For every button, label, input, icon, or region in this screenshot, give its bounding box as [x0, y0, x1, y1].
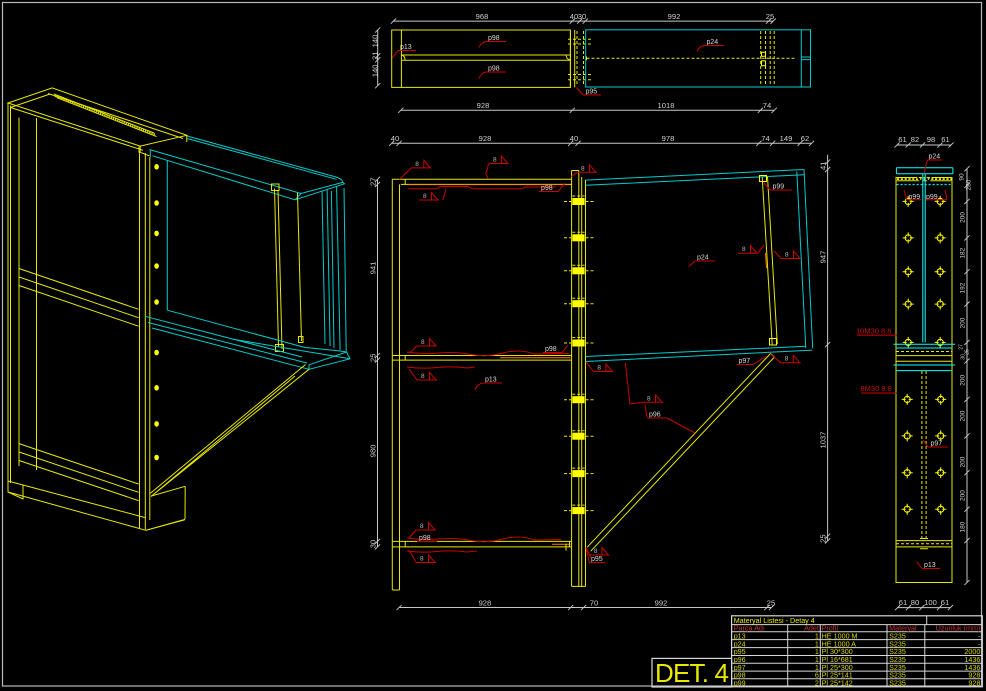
- svg-text:992: 992: [668, 12, 681, 21]
- svg-text:182: 182: [960, 247, 967, 258]
- svg-text:p95: p95: [591, 556, 603, 563]
- svg-text:8: 8: [742, 246, 746, 253]
- svg-text:p98: p98: [545, 346, 557, 353]
- svg-text:200: 200: [960, 374, 967, 385]
- svg-text:8: 8: [785, 252, 789, 259]
- svg-text:30: 30: [578, 12, 586, 21]
- svg-text:1037: 1037: [819, 432, 828, 449]
- svg-text:62: 62: [801, 134, 809, 143]
- svg-text:928: 928: [479, 598, 492, 607]
- svg-text:61: 61: [941, 135, 949, 144]
- svg-text:8: 8: [421, 373, 425, 380]
- svg-text:98: 98: [927, 135, 935, 144]
- svg-text:25: 25: [369, 354, 378, 362]
- svg-text:8: 8: [415, 161, 419, 168]
- svg-text:8: 8: [594, 548, 598, 555]
- svg-text:p99: p99: [773, 184, 785, 191]
- svg-text:192: 192: [960, 282, 967, 293]
- svg-text:p97: p97: [931, 441, 943, 448]
- svg-text:p24: p24: [707, 39, 719, 46]
- svg-text:100: 100: [924, 598, 937, 607]
- svg-text:41: 41: [819, 162, 828, 170]
- svg-text:8: 8: [597, 365, 601, 372]
- svg-text:40: 40: [570, 134, 578, 143]
- svg-text:8: 8: [493, 156, 497, 163]
- svg-text:p98: p98: [488, 66, 500, 73]
- svg-text:200: 200: [960, 456, 967, 467]
- svg-text:30: 30: [961, 354, 967, 360]
- svg-text:p95: p95: [586, 89, 598, 96]
- svg-text:980: 980: [369, 445, 378, 458]
- svg-text:928: 928: [479, 134, 492, 143]
- svg-text:61: 61: [941, 598, 949, 607]
- svg-text:27: 27: [369, 178, 378, 186]
- svg-text:DET. 4: DET. 4: [655, 658, 729, 688]
- svg-text:992: 992: [655, 598, 668, 607]
- svg-text:30: 30: [369, 540, 378, 548]
- svg-text:80: 80: [911, 598, 919, 607]
- svg-text:p13: p13: [924, 562, 936, 569]
- svg-text:968: 968: [476, 12, 489, 21]
- svg-text:8: 8: [785, 355, 789, 362]
- svg-text:8: 8: [581, 165, 585, 172]
- svg-text:82: 82: [911, 135, 919, 144]
- svg-text:8: 8: [420, 556, 424, 563]
- svg-text:74: 74: [763, 101, 771, 110]
- svg-text:1018: 1018: [658, 101, 675, 110]
- svg-text:61: 61: [898, 135, 906, 144]
- svg-text:928: 928: [968, 679, 980, 688]
- svg-text:2: 2: [815, 679, 819, 688]
- svg-text:p24: p24: [697, 255, 709, 262]
- svg-text:928: 928: [477, 101, 490, 110]
- svg-text:947: 947: [819, 251, 828, 264]
- svg-text:p98: p98: [541, 185, 553, 192]
- svg-text:140: 140: [371, 64, 380, 77]
- svg-text:21: 21: [371, 52, 380, 60]
- svg-text:90: 90: [959, 173, 966, 181]
- svg-text:200: 200: [960, 317, 967, 328]
- svg-text:25: 25: [965, 349, 971, 355]
- svg-text:8: 8: [423, 193, 427, 200]
- svg-text:p13: p13: [400, 44, 412, 51]
- svg-text:40: 40: [391, 134, 399, 143]
- svg-text:S235: S235: [889, 679, 906, 688]
- svg-text:p99: p99: [734, 679, 746, 688]
- svg-text:74: 74: [761, 134, 769, 143]
- svg-text:149: 149: [780, 134, 793, 143]
- svg-text:978: 978: [662, 134, 675, 143]
- svg-text:8M30 8.8: 8M30 8.8: [861, 384, 892, 393]
- svg-text:p13: p13: [485, 377, 497, 384]
- svg-text:200: 200: [960, 490, 967, 501]
- svg-text:280: 280: [966, 179, 973, 190]
- svg-text:70: 70: [590, 598, 598, 607]
- svg-text:10M30 8.8: 10M30 8.8: [856, 327, 891, 336]
- svg-text:p98: p98: [488, 35, 500, 42]
- svg-text:27: 27: [959, 344, 965, 350]
- svg-text:p97: p97: [739, 358, 751, 365]
- svg-text:8: 8: [421, 339, 425, 346]
- svg-text:Pl 25*142: Pl 25*142: [822, 679, 853, 688]
- svg-text:200: 200: [960, 410, 967, 421]
- svg-text:200: 200: [960, 212, 967, 223]
- svg-text:25: 25: [819, 534, 828, 542]
- svg-text:p98: p98: [419, 535, 431, 542]
- svg-text:8: 8: [647, 395, 651, 402]
- svg-text:941: 941: [369, 262, 378, 275]
- svg-text:180: 180: [960, 521, 967, 532]
- svg-text:25: 25: [767, 598, 775, 607]
- svg-text:p96: p96: [649, 412, 661, 419]
- svg-text:140: 140: [371, 35, 380, 48]
- svg-text:25: 25: [766, 12, 774, 21]
- svg-text:8: 8: [420, 523, 424, 530]
- svg-text:Uzunluk (mm): Uzunluk (mm): [936, 624, 981, 633]
- svg-text:61: 61: [899, 598, 907, 607]
